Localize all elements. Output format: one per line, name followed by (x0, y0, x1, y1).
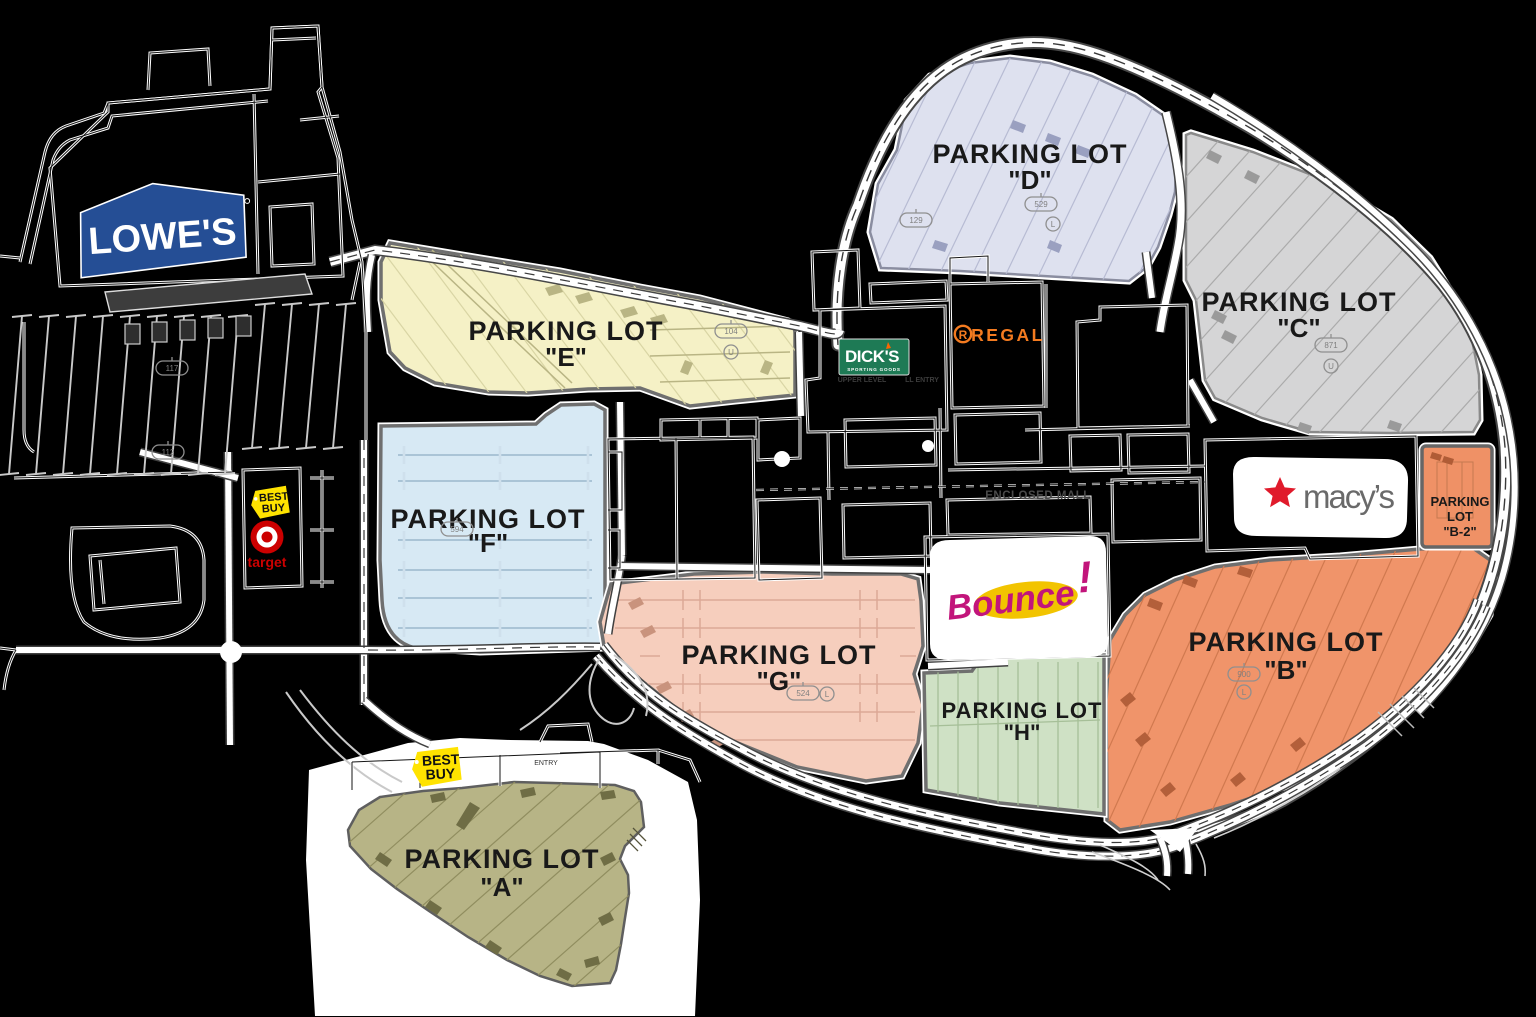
svg-text:ENTRY: ENTRY (534, 760, 558, 767)
svg-text:"C": "C" (1277, 313, 1320, 343)
svg-text:529: 529 (1034, 200, 1048, 209)
svg-text:SPORTING GOODS: SPORTING GOODS (847, 367, 901, 372)
svg-text:900: 900 (1237, 670, 1251, 679)
svg-text:"H": "H" (1004, 720, 1041, 745)
svg-text:104: 104 (724, 327, 738, 336)
svg-text:UPPER LEVEL: UPPER LEVEL (838, 377, 887, 384)
svg-text:L: L (1242, 688, 1247, 697)
svg-text:PARKING LOT: PARKING LOT (405, 844, 600, 874)
svg-text:PARKING: PARKING (1431, 494, 1490, 509)
svg-text:PARKING LOT: PARKING LOT (1189, 627, 1384, 657)
svg-text:871: 871 (1324, 341, 1338, 350)
svg-text:594: 594 (450, 525, 464, 534)
svg-text:BUY: BUY (261, 502, 286, 516)
svg-text:129: 129 (909, 216, 923, 225)
svg-text:"G": "G" (757, 666, 802, 696)
svg-text:REGAL: REGAL (971, 325, 1045, 345)
svg-text:DICK'S: DICK'S (845, 347, 899, 366)
svg-text:L: L (1051, 220, 1056, 229)
svg-text:"F": "F" (468, 528, 509, 558)
svg-text:L: L (825, 690, 830, 699)
svg-text:U: U (728, 348, 734, 357)
svg-text:117: 117 (166, 364, 179, 373)
svg-text:112: 112 (162, 448, 175, 457)
svg-text:"D": "D" (1008, 165, 1051, 195)
svg-text:ENCLOSED MALL: ENCLOSED MALL (985, 490, 1091, 502)
svg-text:LOT: LOT (1447, 509, 1473, 524)
svg-text:"E": "E" (545, 342, 587, 372)
svg-text:U: U (1328, 362, 1334, 371)
svg-text:target: target (248, 554, 287, 570)
svg-text:"A": "A" (480, 872, 523, 902)
svg-text:"B": "B" (1264, 655, 1307, 685)
svg-text:"B-2": "B-2" (1443, 524, 1476, 539)
svg-text:524: 524 (796, 689, 810, 698)
svg-text:macy’s: macy’s (1303, 478, 1395, 515)
svg-text:BUY: BUY (425, 765, 456, 783)
svg-text:LL ENTRY: LL ENTRY (905, 377, 939, 384)
svg-text:R: R (959, 328, 968, 342)
